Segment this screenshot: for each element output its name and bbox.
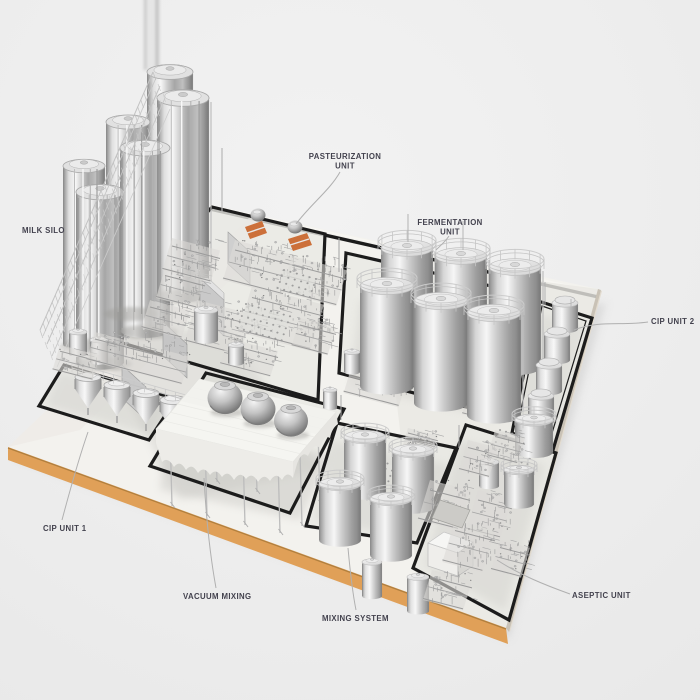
svg-text:PASTEURIZATION: PASTEURIZATION [309,152,382,161]
svg-text:CIP UNIT 1: CIP UNIT 1 [43,524,87,533]
svg-text:VACUUM MIXING: VACUUM MIXING [183,592,251,601]
svg-text:ASEPTIC UNIT: ASEPTIC UNIT [572,591,631,600]
svg-text:UNIT: UNIT [440,228,460,237]
svg-text:MILK SILO: MILK SILO [22,226,65,235]
svg-text:CIP UNIT 2: CIP UNIT 2 [651,317,695,326]
svg-text:UNIT: UNIT [335,162,355,171]
svg-text:FERMENTATION: FERMENTATION [417,218,482,227]
svg-text:MIXING SYSTEM: MIXING SYSTEM [322,614,389,623]
